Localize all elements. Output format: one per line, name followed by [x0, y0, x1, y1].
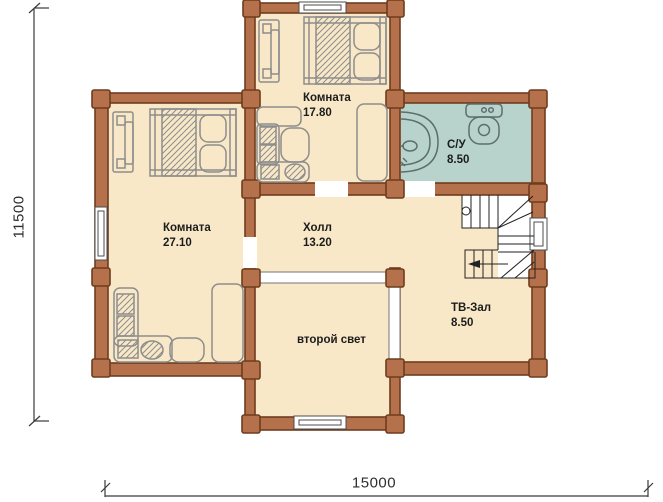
room-name-label: Комната: [163, 221, 211, 236]
room-label-bedroom-17: Комната 17.80: [303, 91, 351, 121]
room-name-label: Комната: [303, 91, 351, 106]
corner-post: [529, 359, 547, 377]
room-label-bathroom: С/У 8.50: [447, 138, 469, 168]
wall-segment: [390, 362, 545, 375]
railing-right: [389, 283, 400, 362]
corner-post: [386, 359, 404, 377]
corner-post: [387, 0, 404, 17]
corner-post: [242, 415, 260, 433]
dimension-line-vertical: [29, 3, 49, 426]
floor-plan-drawing: [0, 0, 663, 502]
corner-post: [242, 90, 260, 108]
wall-segment: [95, 93, 255, 103]
corner-post: [386, 180, 404, 198]
corner-post: [242, 269, 260, 287]
room-label-bedroom-27: Комната 27.10: [163, 221, 211, 251]
door-opening: [402, 181, 435, 197]
wall-segment: [395, 93, 545, 103]
corner-post: [92, 268, 110, 286]
room-area-label: 17.80: [303, 106, 351, 121]
room-area-label: 8.50: [447, 153, 469, 168]
corner-post: [386, 415, 404, 433]
dimension-height-label: 11500: [11, 195, 28, 238]
room-label-hall: Холл 13.20: [303, 221, 332, 251]
corner-post: [243, 0, 260, 17]
wall-segment: [95, 363, 255, 376]
floor-plan: Комната 17.80 Комната 27.10 Холл 13.20 С…: [0, 0, 663, 502]
corner-post: [242, 180, 260, 198]
corner-post: [529, 90, 547, 108]
room-area-label: 8.50: [451, 316, 491, 331]
corner-post: [386, 269, 404, 287]
room-area-label: 13.20: [303, 236, 332, 251]
room-name-label: второй свет: [297, 333, 366, 348]
corner-post: [92, 359, 110, 377]
dimension-width-label: 15000: [352, 475, 396, 492]
corner-post: [242, 361, 260, 379]
door-opening: [315, 181, 348, 197]
room-label-tv-room: ТВ-Зал 8.50: [451, 301, 491, 331]
window-pane: [534, 222, 543, 246]
room-name-label: Холл: [303, 221, 332, 236]
corner-post: [529, 184, 547, 202]
corner-post: [92, 90, 110, 108]
door-opening: [243, 237, 257, 268]
room-area-label: 27.10: [163, 236, 211, 251]
window-pane: [299, 420, 341, 425]
room-name-label: ТВ-Зал: [451, 301, 491, 316]
corner-post: [386, 90, 404, 108]
room-label-second-light: второй свет: [297, 333, 366, 348]
railing-top: [254, 272, 392, 283]
room-name-label: С/У: [447, 138, 469, 153]
window-pane: [98, 211, 104, 256]
window-pane: [304, 5, 341, 10]
